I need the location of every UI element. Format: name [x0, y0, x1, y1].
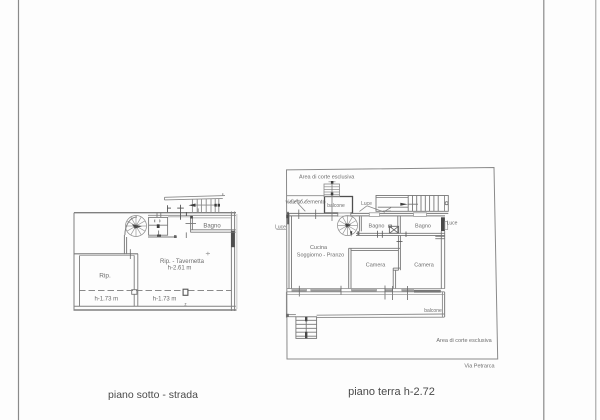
svg-text:h-1.73 m: h-1.73 m — [94, 297, 118, 303]
svg-text:Bagno: Bagno — [203, 224, 221, 230]
svg-text:Camera: Camera — [366, 263, 387, 269]
svg-text:h-2.61 m: h-2.61 m — [168, 266, 192, 272]
svg-text:Soggiorno - Pranzo: Soggiorno - Pranzo — [297, 253, 344, 259]
svg-text:h-1.73 m: h-1.73 m — [153, 297, 177, 303]
svg-text:piano terra h-2.72: piano terra h-2.72 — [348, 386, 435, 398]
svg-text:Rip. - Tavernetta: Rip. - Tavernetta — [160, 259, 205, 265]
svg-text:Rip.: Rip. — [99, 273, 111, 280]
svg-text:Bagno: Bagno — [369, 223, 385, 229]
svg-text:Area di corte esclusiva: Area di corte esclusiva — [436, 338, 492, 344]
svg-text:Bagno: Bagno — [415, 223, 431, 229]
svg-text:balcone: balcone — [424, 308, 442, 314]
svg-text:Area di corte esclusiva: Area di corte esclusiva — [299, 174, 355, 180]
svg-text:Luce: Luce — [447, 221, 458, 227]
svg-text:Cucina: Cucina — [310, 245, 328, 251]
svg-text:vialetto cemento: vialetto cemento — [285, 200, 325, 206]
svg-text:Via Petrarca: Via Petrarca — [464, 364, 495, 370]
svg-text:Camera: Camera — [414, 263, 435, 269]
svg-text:balcone: balcone — [327, 203, 345, 209]
svg-text:z: z — [184, 302, 187, 307]
svg-text:piano sotto - strada: piano sotto - strada — [108, 389, 198, 401]
